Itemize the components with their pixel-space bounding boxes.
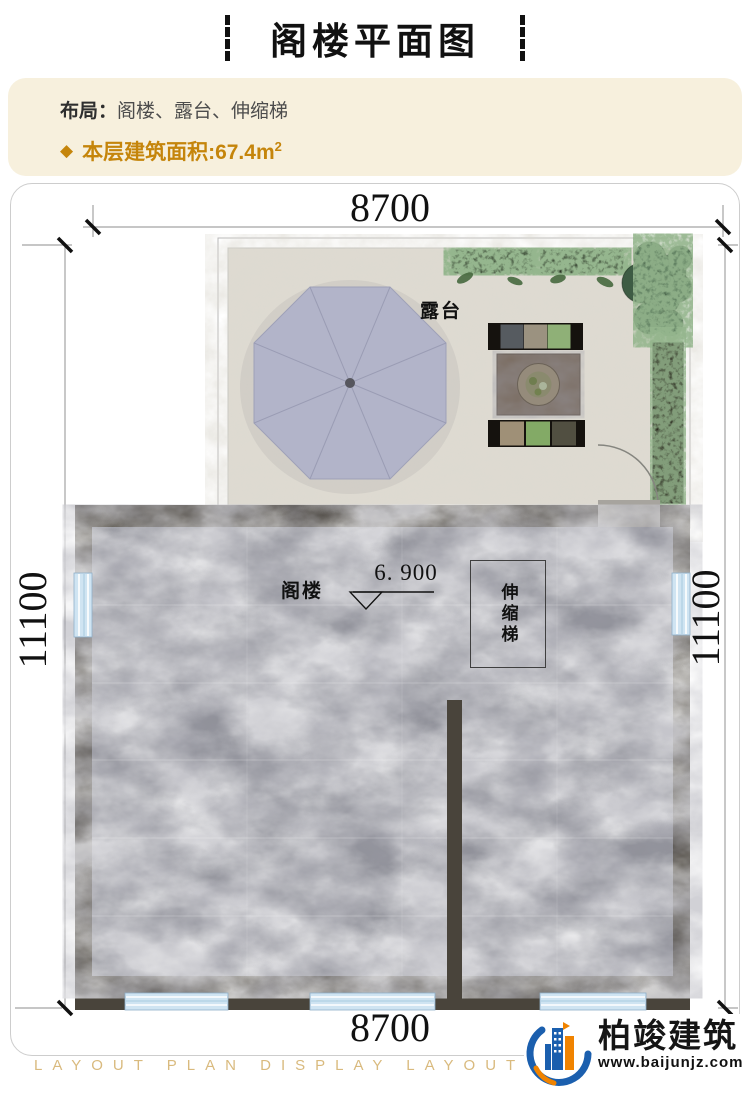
bench-bottom xyxy=(488,420,585,447)
room-label-terrace: 露台 xyxy=(420,296,462,323)
layout-value: 阁楼、露台、伸缩梯 xyxy=(117,101,288,122)
brand-website: www.baijunjz.com xyxy=(598,1054,743,1072)
stone-table xyxy=(497,354,580,415)
dimension-left: 11100 xyxy=(11,535,55,705)
room-label-attic: 阁楼 xyxy=(281,576,323,603)
brand-logo: 柏竣建筑 www.baijunjz.com xyxy=(524,1014,750,1093)
window-bottom-1 xyxy=(125,993,228,1010)
partition-wall xyxy=(447,700,462,1010)
layout-line: 布局：阁楼、露台、伸缩梯 xyxy=(60,96,742,123)
brand-logo-icon xyxy=(524,1014,598,1088)
window-left xyxy=(74,573,92,637)
area-line: ◆ 本层建筑面积:67.4m2 xyxy=(60,136,742,166)
dimension-bottom: 8700 xyxy=(300,1006,480,1050)
title-dash-bar-left xyxy=(225,15,230,61)
layout-label: 布局： xyxy=(60,101,117,122)
info-card: 布局：阁楼、露台、伸缩梯 ◆ 本层建筑面积:67.4m2 xyxy=(8,78,742,176)
brand-name: 柏竣建筑 xyxy=(598,1018,743,1054)
area-value: 本层建筑面积:67.4m2 xyxy=(82,136,282,166)
bench-top xyxy=(488,323,583,350)
page: { "header": { "title": "阁楼平面图" }, "info"… xyxy=(0,0,750,1093)
tree-foliage-texture xyxy=(638,243,688,338)
title-dash-bar-right xyxy=(520,15,525,61)
terrace xyxy=(218,238,692,528)
umbrella-pole-icon xyxy=(345,378,355,388)
elevation-value: 6. 900 xyxy=(356,560,456,586)
page-header: 阁楼平面图 xyxy=(0,0,750,76)
door-threshold xyxy=(598,500,660,527)
floor-plan-graphic xyxy=(10,183,740,1056)
diamond-icon: ◆ xyxy=(60,141,73,161)
brand-text-block: 柏竣建筑 www.baijunjz.com xyxy=(598,1014,743,1072)
page-title: 阁楼平面图 xyxy=(270,11,480,65)
dimension-top: 8700 xyxy=(300,186,480,230)
window-bottom-3 xyxy=(540,993,646,1010)
room-label-ladder: 伸缩梯 xyxy=(470,560,546,668)
side-planter xyxy=(653,343,683,503)
dimension-right: 11100 xyxy=(684,533,728,703)
